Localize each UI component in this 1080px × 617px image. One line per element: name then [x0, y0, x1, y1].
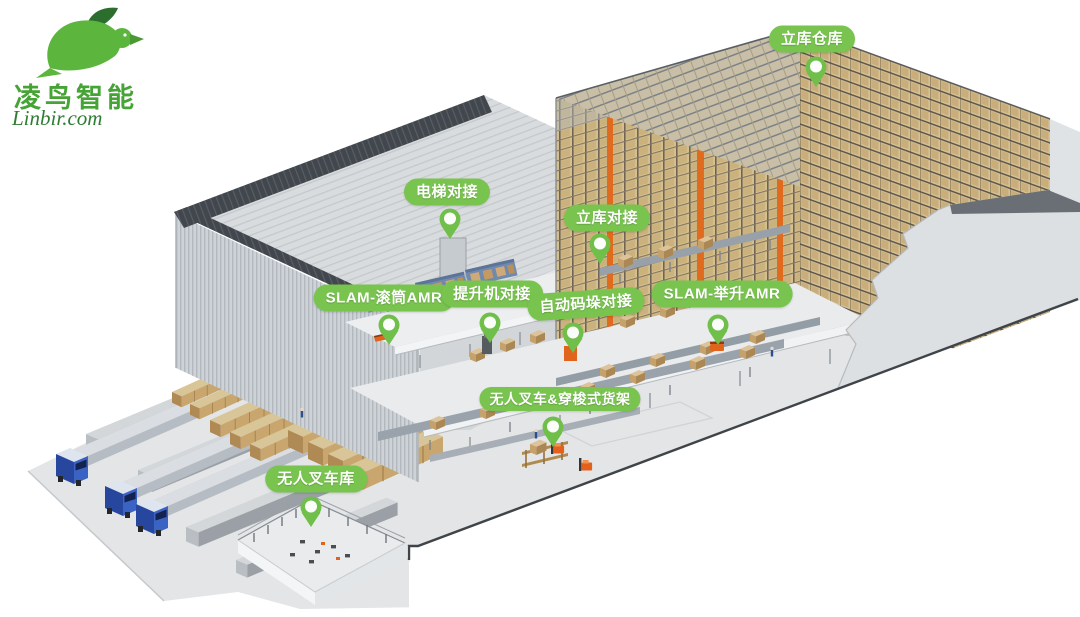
location-pin-icon — [705, 314, 731, 346]
location-pin-icon — [560, 322, 586, 354]
callout-slam-roller-amr: SLAM-滚筒AMR — [314, 285, 455, 312]
brand-site: Linbir.com — [12, 106, 102, 131]
brand-logo: 凌鸟智能 Linbir.com — [8, 4, 208, 134]
callout-slam-lifting-amr: SLAM-举升AMR — [652, 281, 793, 308]
callout-unmanned-forklift-garage: 无人叉车库 — [265, 466, 367, 493]
location-pin-icon — [437, 208, 463, 240]
warehouse-illustration: 凌鸟智能 Linbir.com 立库仓库 电梯对接 立库对接 SLAM-滚筒AM… — [0, 0, 1080, 617]
callout-asrs-warehouse: 立库仓库 — [769, 26, 855, 53]
callout-unmanned-forklift-shuttle-rack: 无人叉车&穿梭式货架 — [479, 387, 640, 411]
callout-asrs-docking: 立库对接 — [564, 205, 650, 232]
location-pin-icon — [803, 56, 829, 88]
callout-elevator-docking: 电梯对接 — [404, 179, 490, 206]
location-pin-icon — [298, 496, 324, 528]
location-pin-icon — [477, 312, 503, 344]
location-pin-icon — [540, 416, 566, 448]
bird-logo-icon — [36, 6, 156, 78]
location-pin-icon — [587, 233, 613, 265]
location-pin-icon — [376, 314, 402, 346]
